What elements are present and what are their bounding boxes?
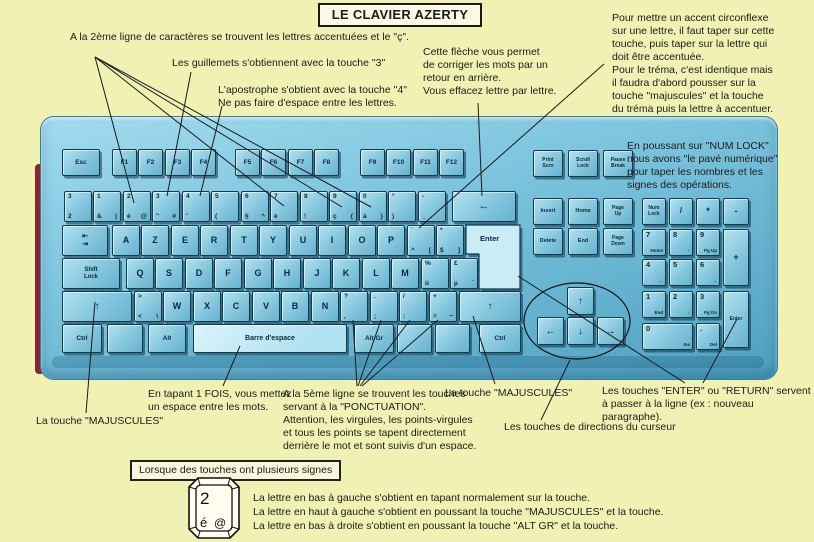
key-label: Ctrl bbox=[494, 335, 505, 342]
key-label: X bbox=[204, 302, 210, 312]
key-label: 4 bbox=[186, 193, 190, 201]
key-label: Z bbox=[152, 236, 158, 246]
key-label: ↑ bbox=[578, 296, 583, 307]
key-deux-points: /: bbox=[399, 291, 427, 322]
key-label: ( bbox=[215, 213, 217, 220]
key-label: W bbox=[173, 302, 182, 312]
key-label: T bbox=[241, 236, 247, 246]
key-numpad-enter: Enter bbox=[723, 291, 749, 348]
key-egal: +=~ bbox=[429, 291, 457, 322]
key-numpad-9: 9Pg Up bbox=[696, 229, 720, 256]
key-numpad-multiply: * bbox=[696, 198, 720, 225]
key-label: & bbox=[97, 213, 102, 220]
key-label: ^ bbox=[411, 247, 415, 254]
key-label: } bbox=[380, 213, 383, 220]
note-backspace: Cette flèche vous permet de corriger les… bbox=[423, 46, 556, 98]
sample-key-altgr-char: @ bbox=[214, 516, 226, 530]
key-label: F10 bbox=[393, 159, 404, 166]
key-7-e-grave: 7è bbox=[270, 191, 298, 222]
key-label: P bbox=[388, 236, 394, 246]
key-y: Y bbox=[259, 225, 287, 256]
key-shift-lock: Shift Lock bbox=[62, 258, 120, 289]
key-e: E bbox=[171, 225, 199, 256]
key-label: 5 bbox=[215, 193, 219, 201]
key-6: 6§^ bbox=[241, 191, 269, 222]
key-label: F11 bbox=[420, 159, 431, 166]
key-label: → bbox=[606, 326, 616, 337]
key-label: à bbox=[363, 213, 367, 220]
key-label: Barre d'espace bbox=[245, 335, 295, 343]
key-label: ' bbox=[186, 213, 188, 220]
key-label: Ctrl bbox=[76, 335, 87, 342]
key-label: Enter bbox=[730, 317, 743, 323]
key-label: Pg Dn bbox=[704, 309, 717, 316]
key-d: D bbox=[185, 258, 213, 289]
key-label: @ bbox=[141, 213, 147, 220]
key-label: Y bbox=[270, 236, 276, 246]
key-label: 0 bbox=[646, 325, 650, 333]
key-label: * bbox=[440, 227, 443, 235]
key-j: J bbox=[303, 258, 331, 289]
key-0-a-grave: 0à} bbox=[359, 191, 387, 222]
key-label: L bbox=[373, 269, 379, 279]
key-label: H bbox=[284, 269, 291, 279]
key-label: Print Scrn bbox=[542, 158, 553, 169]
key-numpad-5: 5 bbox=[669, 259, 693, 286]
key-label: ^ bbox=[261, 213, 265, 220]
key-label: Home bbox=[575, 208, 590, 214]
key-trema-circonflexe: ¨^[ bbox=[407, 225, 435, 256]
key-label: \ bbox=[156, 313, 158, 320]
key-t: T bbox=[230, 225, 258, 256]
key-label: / bbox=[680, 207, 682, 216]
key-label: 3 bbox=[156, 193, 160, 201]
key-label: Scroll Lock bbox=[576, 158, 590, 169]
key-space: Barre d'espace bbox=[193, 324, 347, 353]
key-blank-2 bbox=[397, 324, 432, 353]
key-numpad-divide: / bbox=[669, 198, 693, 225]
key-sup23: 32 bbox=[64, 191, 92, 222]
key-f12: F12 bbox=[439, 149, 464, 176]
key-label: N bbox=[322, 302, 329, 312]
key-label: F7 bbox=[297, 159, 305, 166]
key-n: N bbox=[311, 291, 339, 322]
key-tab: ⇤ ⇥ bbox=[62, 225, 108, 256]
key-label: Shift Lock bbox=[84, 267, 98, 280]
key-label: ← bbox=[546, 326, 556, 337]
key-label: 8 bbox=[304, 193, 308, 201]
key-esc: Esc bbox=[62, 149, 100, 176]
key-u-grave: %ù bbox=[421, 258, 449, 289]
key-o: O bbox=[348, 225, 376, 256]
key-label: < bbox=[138, 313, 142, 320]
key-4-apostrophe: 4' bbox=[182, 191, 210, 222]
key-label: E bbox=[182, 236, 188, 246]
key-backspace: ← bbox=[452, 191, 516, 222]
key-label: [ bbox=[429, 247, 431, 254]
key-label: Delete bbox=[540, 238, 557, 244]
key-i: I bbox=[318, 225, 346, 256]
sample-key-shift-char: 2 bbox=[200, 489, 209, 508]
key-label: ~ bbox=[449, 313, 453, 320]
key-label: 1 bbox=[646, 293, 650, 301]
key-p: P bbox=[377, 225, 405, 256]
key-arrow-down: ↓ bbox=[567, 317, 594, 345]
key-label: → bbox=[713, 277, 718, 284]
key-5: 5( bbox=[211, 191, 239, 222]
key-1: 1&| bbox=[93, 191, 121, 222]
key-label: G bbox=[254, 269, 261, 279]
key-label: M bbox=[401, 269, 409, 279]
sample-keycap: 2 é @ bbox=[188, 477, 240, 539]
key-label: + bbox=[433, 293, 437, 301]
key-label: ç bbox=[333, 213, 337, 220]
key-numpad-2: 2↓ bbox=[669, 291, 693, 318]
key-8: 8! bbox=[300, 191, 328, 222]
key-b: B bbox=[281, 291, 309, 322]
key-arrow-left: ← bbox=[537, 317, 564, 345]
key-label: Alt Gr bbox=[365, 335, 383, 342]
key-shift-right: ↑ bbox=[459, 291, 521, 322]
key-label: F12 bbox=[446, 159, 457, 166]
key-numpad-4: 4← bbox=[642, 259, 666, 286]
key-label: 3 bbox=[68, 193, 72, 201]
key-label: ← bbox=[659, 277, 664, 284]
key-label: % bbox=[425, 260, 431, 268]
key-label: > bbox=[138, 293, 142, 301]
key-label: F4 bbox=[200, 159, 208, 166]
key-label: * bbox=[706, 207, 710, 217]
key-page-up: Page Up bbox=[603, 198, 633, 225]
key-insert: Insert bbox=[533, 198, 563, 225]
key-degre: °) bbox=[388, 191, 416, 222]
key-home: Home bbox=[568, 198, 598, 225]
note-majuscules-left: La touche "MAJUSCULES" bbox=[36, 415, 163, 428]
key-label: R bbox=[211, 236, 218, 246]
key-alt: Alt bbox=[148, 324, 186, 353]
key-point-virgule: .; bbox=[370, 291, 398, 322]
key-label: ` bbox=[472, 280, 474, 287]
key-label: ↓ bbox=[688, 309, 690, 316]
key-numpad-6: 6→ bbox=[696, 259, 720, 286]
note-accented-letters: A la 2ème ligne de caractères se trouven… bbox=[70, 31, 409, 44]
key-a: A bbox=[112, 225, 140, 256]
key-numpad-plus: + bbox=[723, 229, 749, 286]
key-numpad-8: 8↑ bbox=[669, 229, 693, 256]
note-circonflexe-trema: Pour mettre un accent circonflexe sur un… bbox=[612, 12, 774, 116]
note-guillemets: Les guillemets s'obtiennent avec la touc… bbox=[172, 57, 385, 70]
key-end: End bbox=[568, 228, 598, 255]
key-numpad-dot: .Del bbox=[696, 323, 720, 350]
key-label: ° bbox=[392, 193, 395, 201]
key-arrow-right: → bbox=[597, 317, 624, 345]
key-livre-mu: £µ` bbox=[450, 258, 478, 289]
key-f1: F1 bbox=[112, 149, 137, 176]
key-label: Page Down bbox=[611, 236, 625, 247]
key-label: 9 bbox=[333, 193, 337, 201]
key-label: ? bbox=[344, 293, 348, 301]
key-numpad-7: 7Home bbox=[642, 229, 666, 256]
key-label: O bbox=[358, 236, 365, 246]
key-label: $ bbox=[440, 247, 444, 254]
key-label: 0 bbox=[363, 193, 367, 201]
key-label: F1 bbox=[121, 159, 129, 166]
key-label: ] bbox=[458, 247, 460, 254]
key-label: - bbox=[422, 193, 424, 201]
key-numpad-1: 1End bbox=[642, 291, 666, 318]
key-label: ← bbox=[479, 200, 490, 212]
key-ctrl-right: Ctrl bbox=[479, 324, 521, 353]
key-label: / bbox=[403, 293, 405, 301]
key-label: U bbox=[300, 236, 307, 246]
key-f4: F4 bbox=[191, 149, 216, 176]
key-numpad-0: 0Ins bbox=[642, 323, 693, 350]
key-k: K bbox=[332, 258, 360, 289]
key-label: B bbox=[292, 302, 299, 312]
key-label: - bbox=[735, 207, 738, 217]
key-label: " bbox=[156, 213, 159, 220]
key-label: £ bbox=[454, 260, 458, 268]
key-9-c-cedilla: 9ç{ bbox=[329, 191, 357, 222]
key-f3: F3 bbox=[165, 149, 190, 176]
key-virgule: ?, bbox=[340, 291, 368, 322]
key-c: C bbox=[222, 291, 250, 322]
key-f6: F6 bbox=[261, 149, 286, 176]
key-label: 8 bbox=[673, 231, 677, 239]
key-label: = bbox=[433, 313, 437, 320]
key-label: | bbox=[115, 213, 117, 220]
key-label: J bbox=[314, 269, 319, 279]
key-label: F6 bbox=[270, 159, 278, 166]
key-label: Home bbox=[650, 247, 663, 254]
key-label: : bbox=[403, 313, 405, 320]
key-label: 6 bbox=[700, 261, 704, 269]
key-label: 2 bbox=[673, 293, 677, 301]
key-blank-1 bbox=[107, 324, 143, 353]
key-arrow-up: ↑ bbox=[567, 287, 594, 315]
key-label: ↑ bbox=[95, 301, 100, 312]
key-f: F bbox=[214, 258, 242, 289]
key-l: L bbox=[362, 258, 390, 289]
key-g: G bbox=[244, 258, 272, 289]
key-label: ¨ bbox=[411, 227, 413, 235]
key-f10: F10 bbox=[386, 149, 411, 176]
key-label: K bbox=[343, 269, 350, 279]
key-label: ) bbox=[392, 213, 394, 220]
key-label: ↑ bbox=[688, 247, 690, 254]
key-label: F3 bbox=[174, 159, 182, 166]
note-num-lock: En poussant sur "NUM LOCK" nous avons "l… bbox=[627, 140, 777, 192]
key-label: Ins bbox=[683, 341, 690, 348]
key-label: + bbox=[733, 253, 738, 263]
key-numpad-3: 3Pg Dn bbox=[696, 291, 720, 318]
key-label: F5 bbox=[244, 159, 252, 166]
key-chevrons: ><\ bbox=[134, 291, 162, 322]
key-num-lock: Num Lock bbox=[642, 198, 666, 225]
key-label: 2 bbox=[127, 193, 131, 201]
key-blank-3 bbox=[435, 324, 470, 353]
key-ctrl-left: Ctrl bbox=[62, 324, 102, 353]
key-f11: F11 bbox=[413, 149, 438, 176]
key-label: 5 bbox=[673, 261, 677, 269]
key-f9: F9 bbox=[360, 149, 385, 176]
key-q: Q bbox=[126, 258, 154, 289]
note-enter-return: Les touches "ENTER" ou "RETURN" servent … bbox=[602, 385, 814, 424]
note-apostrophe: L'apostrophe s'obtient avec la touche "4… bbox=[218, 84, 407, 110]
note-espace: En tapant 1 FOIS, vous mettez un espace … bbox=[148, 388, 292, 414]
key-label: F bbox=[225, 269, 231, 279]
key-label: Esc bbox=[75, 159, 87, 166]
key-label: Pause Break bbox=[611, 158, 626, 169]
key-page-down: Page Down bbox=[603, 228, 633, 255]
key-label: C bbox=[233, 302, 240, 312]
key-label: 4 bbox=[646, 261, 650, 269]
key-label: 2 bbox=[68, 213, 72, 220]
key-label: ; bbox=[374, 313, 376, 320]
key-m: M bbox=[391, 258, 419, 289]
key-2-e-acute: 2é@ bbox=[123, 191, 151, 222]
key-label: 1 bbox=[97, 193, 101, 201]
key-label: End bbox=[578, 238, 588, 244]
sample-key-normal-char: é bbox=[200, 515, 207, 530]
key-label: ⇤ ⇥ bbox=[82, 233, 88, 248]
key-z: Z bbox=[141, 225, 169, 256]
key-numpad-minus: - bbox=[723, 198, 749, 225]
key-label: A bbox=[123, 236, 130, 246]
key-label: F8 bbox=[323, 159, 331, 166]
key-label: I bbox=[331, 236, 334, 246]
key-s: S bbox=[155, 258, 183, 289]
key-label: Alt bbox=[163, 335, 172, 342]
key-label: 3 bbox=[700, 293, 704, 301]
key-u: U bbox=[289, 225, 317, 256]
page-title: LE CLAVIER AZERTY bbox=[318, 3, 482, 27]
keyboard-bottom-groove bbox=[52, 356, 764, 368]
key-label: F2 bbox=[147, 159, 155, 166]
key-label: § bbox=[245, 213, 249, 220]
key-v: V bbox=[252, 291, 280, 322]
key-label: ↑ bbox=[488, 301, 493, 312]
key-label: 6 bbox=[245, 193, 249, 201]
key-label: V bbox=[263, 302, 269, 312]
key-f5: F5 bbox=[235, 149, 260, 176]
key-label: è bbox=[274, 213, 278, 220]
key-label: . bbox=[374, 293, 376, 301]
key-label: . bbox=[700, 325, 702, 333]
note-majuscules-right: La touche "MAJUSCULES" bbox=[445, 387, 572, 400]
key-label: Insert bbox=[541, 208, 556, 214]
note-curseur: Les touches de directions du curseur bbox=[504, 421, 676, 434]
key-x: X bbox=[193, 291, 221, 322]
key-label: Q bbox=[136, 269, 143, 279]
key-f7: F7 bbox=[288, 149, 313, 176]
note-legende: La lettre en bas à gauche s'obtient en t… bbox=[253, 491, 663, 533]
key-label: F9 bbox=[369, 159, 377, 166]
key-w: W bbox=[163, 291, 191, 322]
key-label: _ bbox=[422, 213, 426, 220]
key-label: Page Up bbox=[612, 206, 624, 217]
key-label: # bbox=[172, 213, 176, 220]
key-label: 9 bbox=[700, 231, 704, 239]
key-label: é bbox=[127, 213, 131, 220]
key-label: ù bbox=[425, 280, 429, 287]
key-dollar: *$] bbox=[436, 225, 464, 256]
key-shift-left: ↑ bbox=[62, 291, 132, 322]
key-label: 7 bbox=[274, 193, 278, 201]
key-3-guillemets: 3"# bbox=[152, 191, 180, 222]
key-delete: Delete bbox=[533, 228, 563, 255]
key-print-screen: Print Scrn bbox=[533, 150, 563, 177]
key-f8: F8 bbox=[314, 149, 339, 176]
key-label: Pg Up bbox=[704, 247, 717, 254]
key-label: D bbox=[196, 269, 203, 279]
key-alt-gr: Alt Gr bbox=[354, 324, 394, 353]
key-tiret: -_ bbox=[418, 191, 446, 222]
key-f2: F2 bbox=[138, 149, 163, 176]
key-label: 7 bbox=[646, 231, 650, 239]
key-label: End bbox=[655, 309, 664, 316]
key-label: , bbox=[344, 313, 346, 320]
key-label: Del bbox=[710, 341, 717, 348]
key-label: S bbox=[166, 269, 172, 279]
key-label: Num Lock bbox=[648, 206, 660, 217]
key-label: { bbox=[350, 213, 353, 220]
key-h: H bbox=[273, 258, 301, 289]
key-scroll-lock: Scroll Lock bbox=[568, 150, 598, 177]
key-label: µ bbox=[454, 280, 458, 287]
poster: LE CLAVIER AZERTY EscF1F2F3F4F5F6F7F8F9F… bbox=[0, 0, 814, 542]
key-r: R bbox=[200, 225, 228, 256]
key-label: ↓ bbox=[578, 326, 583, 337]
key-label: ! bbox=[304, 213, 306, 220]
